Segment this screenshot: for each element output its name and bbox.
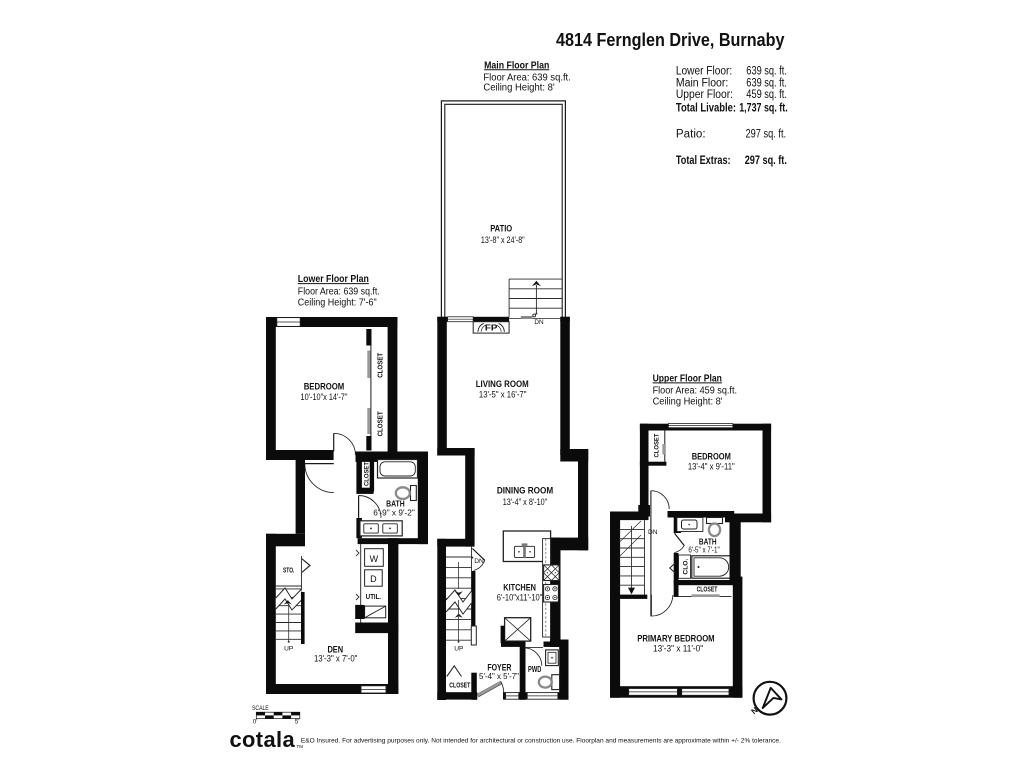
svg-text:FP: FP xyxy=(485,324,498,333)
svg-text:13'-5" x 16'-7": 13'-5" x 16'-7" xyxy=(479,389,527,400)
svg-text:639 sq. ft.: 639 sq. ft. xyxy=(746,66,787,78)
svg-text:E&O Insured. For advertising p: E&O Insured. For advertising purposes on… xyxy=(301,738,781,745)
svg-text:Floor Area: 639 sq.ft.: Floor Area: 639 sq.ft. xyxy=(298,287,380,298)
svg-text:13'-4" x 9'-11": 13'-4" x 9'-11" xyxy=(688,460,735,471)
svg-text:BEDROOM: BEDROOM xyxy=(304,382,345,392)
svg-text:DN: DN xyxy=(648,529,658,536)
svg-text:UP: UP xyxy=(454,646,464,653)
svg-text:CLOSET: CLOSET xyxy=(377,411,384,437)
svg-text:CLOSET: CLOSET xyxy=(654,433,661,458)
svg-text:DN: DN xyxy=(474,558,484,565)
svg-text:DINING ROOM: DINING ROOM xyxy=(497,486,554,496)
svg-text:LIVING ROOM: LIVING ROOM xyxy=(476,379,529,389)
svg-text:5': 5' xyxy=(295,719,300,726)
svg-text:Patio:: Patio: xyxy=(676,129,706,141)
svg-text:6'-5" x 7'-1": 6'-5" x 7'-1" xyxy=(688,545,719,554)
svg-text:cotala: cotala xyxy=(230,727,296,752)
svg-text:CLOSET: CLOSET xyxy=(449,680,470,689)
svg-text:Total Livable:: Total Livable: xyxy=(676,103,736,115)
svg-text:CLOSET: CLOSET xyxy=(697,585,718,594)
svg-text:D: D xyxy=(370,574,377,584)
svg-text:SCALE: SCALE xyxy=(252,705,269,712)
svg-text:CLO.: CLO. xyxy=(682,558,689,574)
svg-text:TM: TM xyxy=(297,744,304,749)
svg-text:Total Extras:: Total Extras: xyxy=(676,155,731,167)
svg-text:PWD: PWD xyxy=(528,665,541,674)
svg-text:Ceiling Height: 8': Ceiling Height: 8' xyxy=(653,397,723,408)
svg-text:STO.: STO. xyxy=(283,566,294,575)
svg-text:5'-4" x 5'-7": 5'-4" x 5'-7" xyxy=(479,671,519,681)
svg-text:Floor Area: 459 sq.ft.: Floor Area: 459 sq.ft. xyxy=(653,386,737,397)
svg-text:UP: UP xyxy=(284,646,294,653)
svg-text:10'-10"x 14'-7": 10'-10"x 14'-7" xyxy=(301,391,348,402)
svg-text:4814 Fernglen Drive, Burnaby: 4814 Fernglen Drive, Burnaby xyxy=(556,29,785,50)
svg-text:13'-3" x 11'-0": 13'-3" x 11'-0" xyxy=(653,643,703,654)
svg-text:Lower Floor:: Lower Floor: xyxy=(676,66,732,78)
svg-text:459 sq. ft.: 459 sq. ft. xyxy=(746,89,787,101)
svg-text:297 sq. ft.: 297 sq. ft. xyxy=(745,155,787,167)
svg-text:0': 0' xyxy=(253,719,258,726)
svg-text:639 sq. ft.: 639 sq. ft. xyxy=(746,78,787,90)
svg-text:6'-9" x 9'-2": 6'-9" x 9'-2" xyxy=(373,508,415,518)
svg-text:CLOSET: CLOSET xyxy=(377,352,384,378)
svg-text:UTIL.: UTIL. xyxy=(366,592,381,601)
svg-text:Ceiling Height: 8': Ceiling Height: 8' xyxy=(483,82,554,93)
svg-text:1,737 sq. ft.: 1,737 sq. ft. xyxy=(739,103,788,115)
svg-text:DN: DN xyxy=(534,319,544,326)
svg-text:297 sq. ft.: 297 sq. ft. xyxy=(746,129,787,141)
svg-text:Main Floor:: Main Floor: xyxy=(676,78,728,90)
svg-text:6'-10"x11'-10": 6'-10"x11'-10" xyxy=(497,592,543,603)
svg-text:13'-3" x 7'-0": 13'-3" x 7'-0" xyxy=(314,653,358,664)
svg-text:13'-4" x 8'-10": 13'-4" x 8'-10" xyxy=(503,496,548,507)
svg-text:Ceiling Height: 7'-6": Ceiling Height: 7'-6" xyxy=(298,298,377,309)
svg-text:CLOSET: CLOSET xyxy=(364,461,371,486)
svg-text:PATIO: PATIO xyxy=(490,224,512,234)
svg-text:13'-8" x 24'-8": 13'-8" x 24'-8" xyxy=(481,234,525,245)
svg-text:W: W xyxy=(370,554,379,564)
svg-text:Upper Floor:: Upper Floor: xyxy=(676,89,733,101)
